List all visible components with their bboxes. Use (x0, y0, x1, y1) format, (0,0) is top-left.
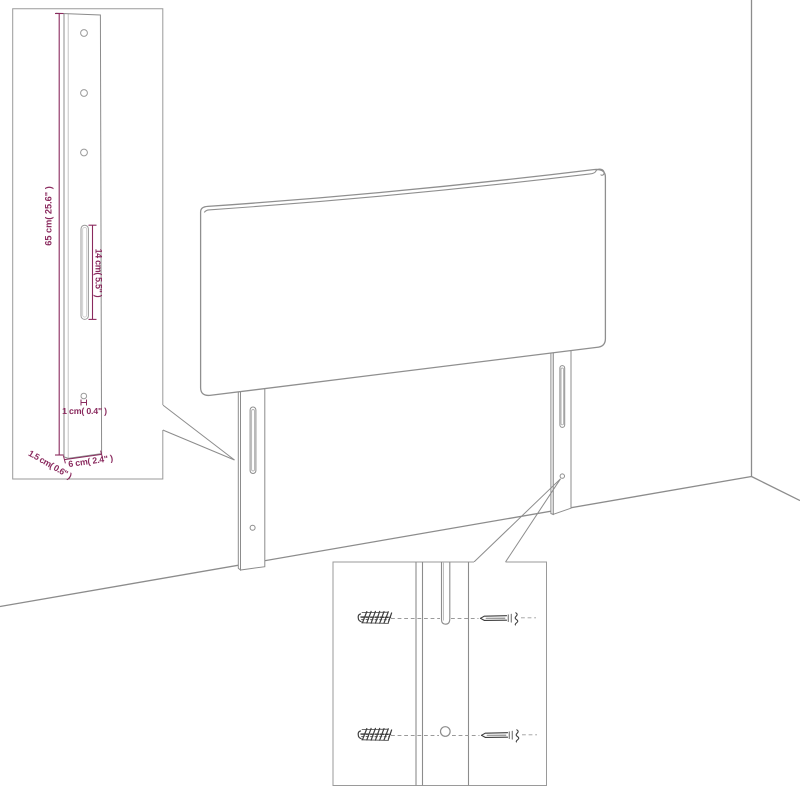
svg-text:1 cm( 0.4" ): 1 cm( 0.4" ) (62, 406, 107, 416)
svg-text:14 cm( 5.5" ): 14 cm( 5.5" ) (94, 249, 104, 298)
svg-text:65 cm( 25.6" ): 65 cm( 25.6" ) (44, 186, 54, 246)
